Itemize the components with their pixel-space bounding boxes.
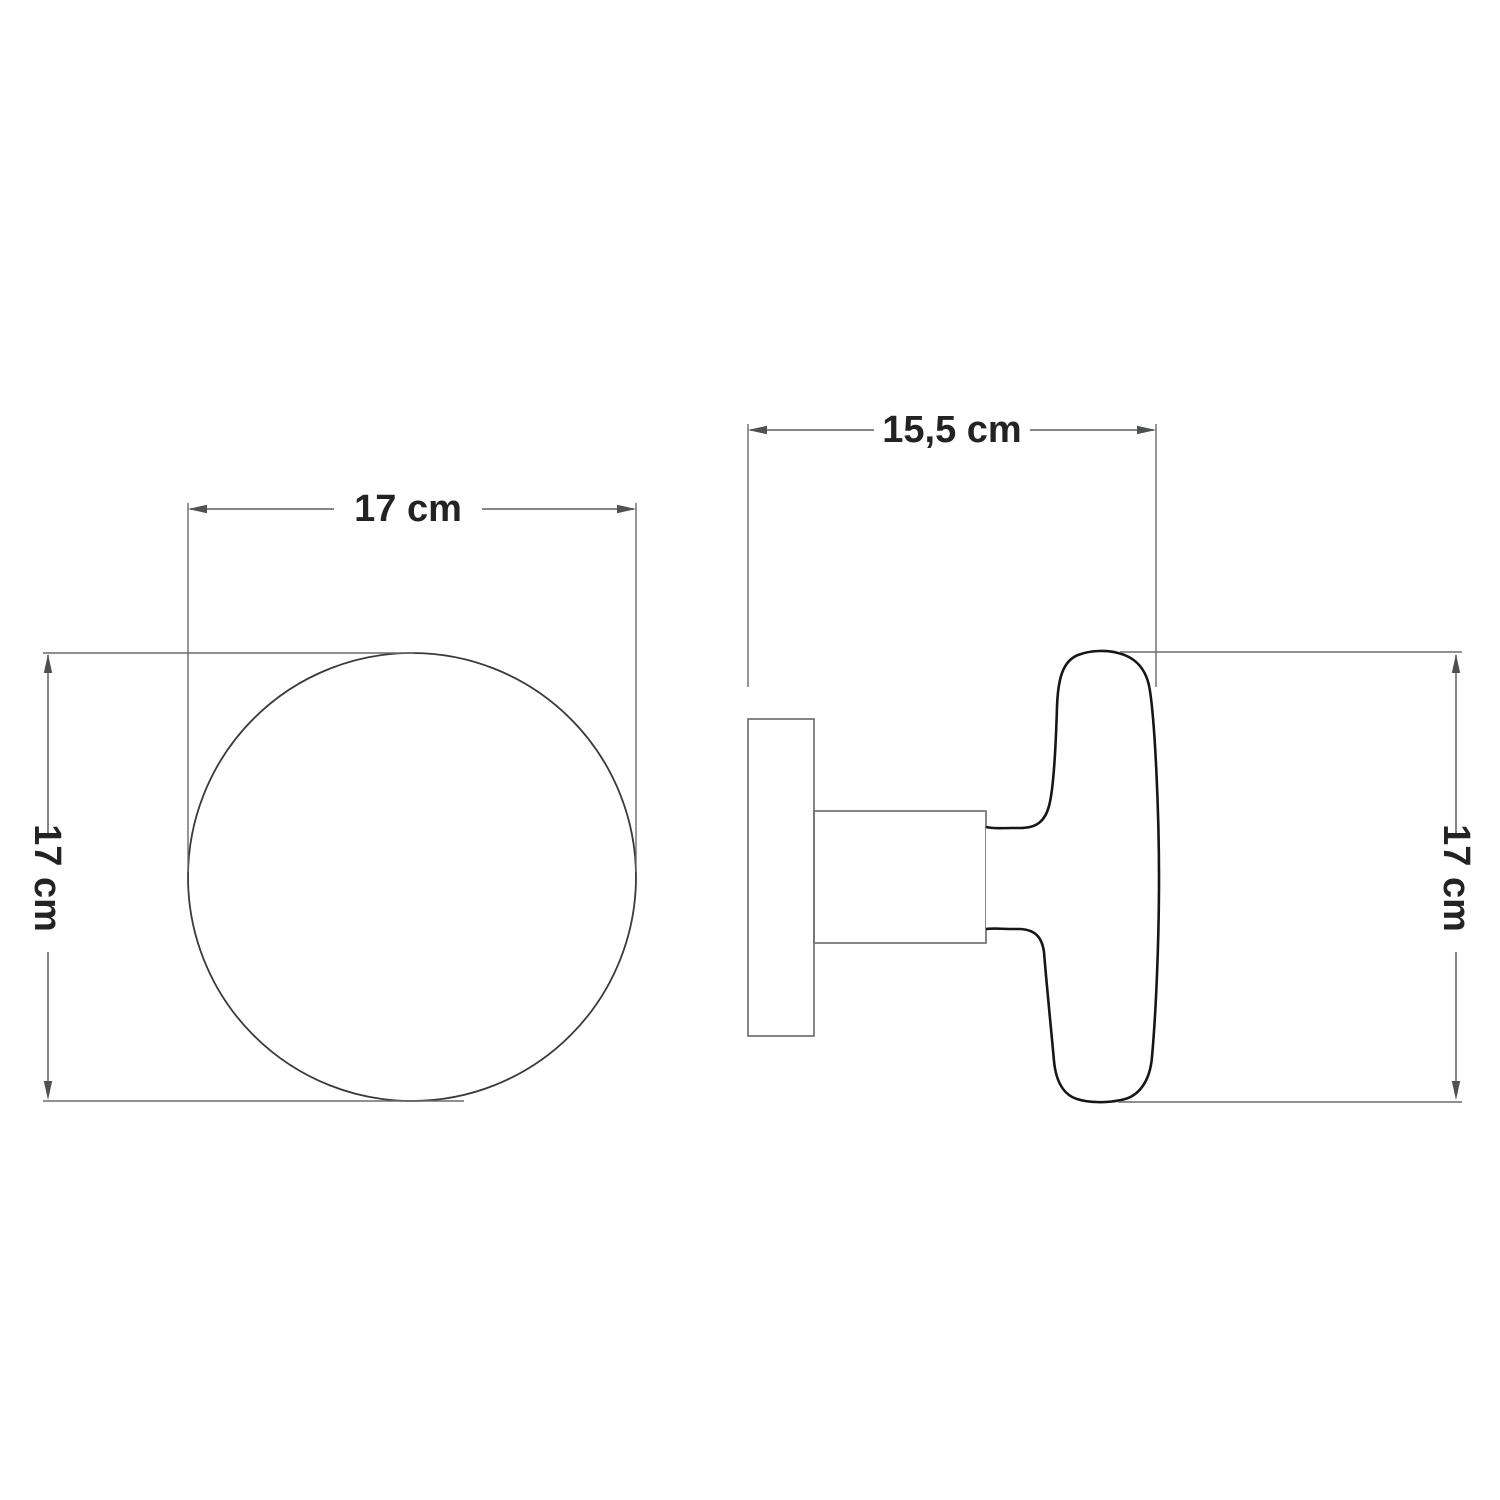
front-view: 17 cm 17 cm: [26, 488, 636, 1101]
side-view-knob-profile: [986, 651, 1159, 1102]
side-height-dimension: 17 cm: [1118, 652, 1477, 1102]
side-depth-dimension-label: 15,5 cm: [882, 409, 1021, 451]
front-width-dimension-label: 17 cm: [354, 488, 462, 530]
arrow-down-icon: [1452, 1081, 1460, 1100]
arrow-right-icon: [1137, 426, 1156, 434]
front-width-dimension: 17 cm: [188, 488, 636, 872]
arrow-up-icon: [44, 654, 52, 673]
technical-drawing-canvas: 17 cm 17 cm: [0, 0, 1500, 1500]
side-view-stem: [814, 811, 986, 943]
arrow-left-icon: [188, 505, 207, 513]
side-depth-dimension: 15,5 cm: [748, 409, 1156, 687]
arrow-left-icon: [748, 426, 767, 434]
arrow-right-icon: [617, 505, 636, 513]
side-view: 15,5 cm 17 cm: [748, 409, 1477, 1102]
technical-drawing-page: 17 cm 17 cm: [0, 0, 1500, 1500]
arrow-up-icon: [1452, 654, 1460, 673]
front-height-dimension: 17 cm: [26, 653, 464, 1101]
front-height-dimension-label: 17 cm: [26, 824, 68, 932]
arrow-down-icon: [44, 1081, 52, 1100]
side-view-base-plate: [748, 719, 814, 1036]
front-view-knob-circle: [188, 653, 636, 1101]
side-height-dimension-label: 17 cm: [1435, 824, 1477, 932]
